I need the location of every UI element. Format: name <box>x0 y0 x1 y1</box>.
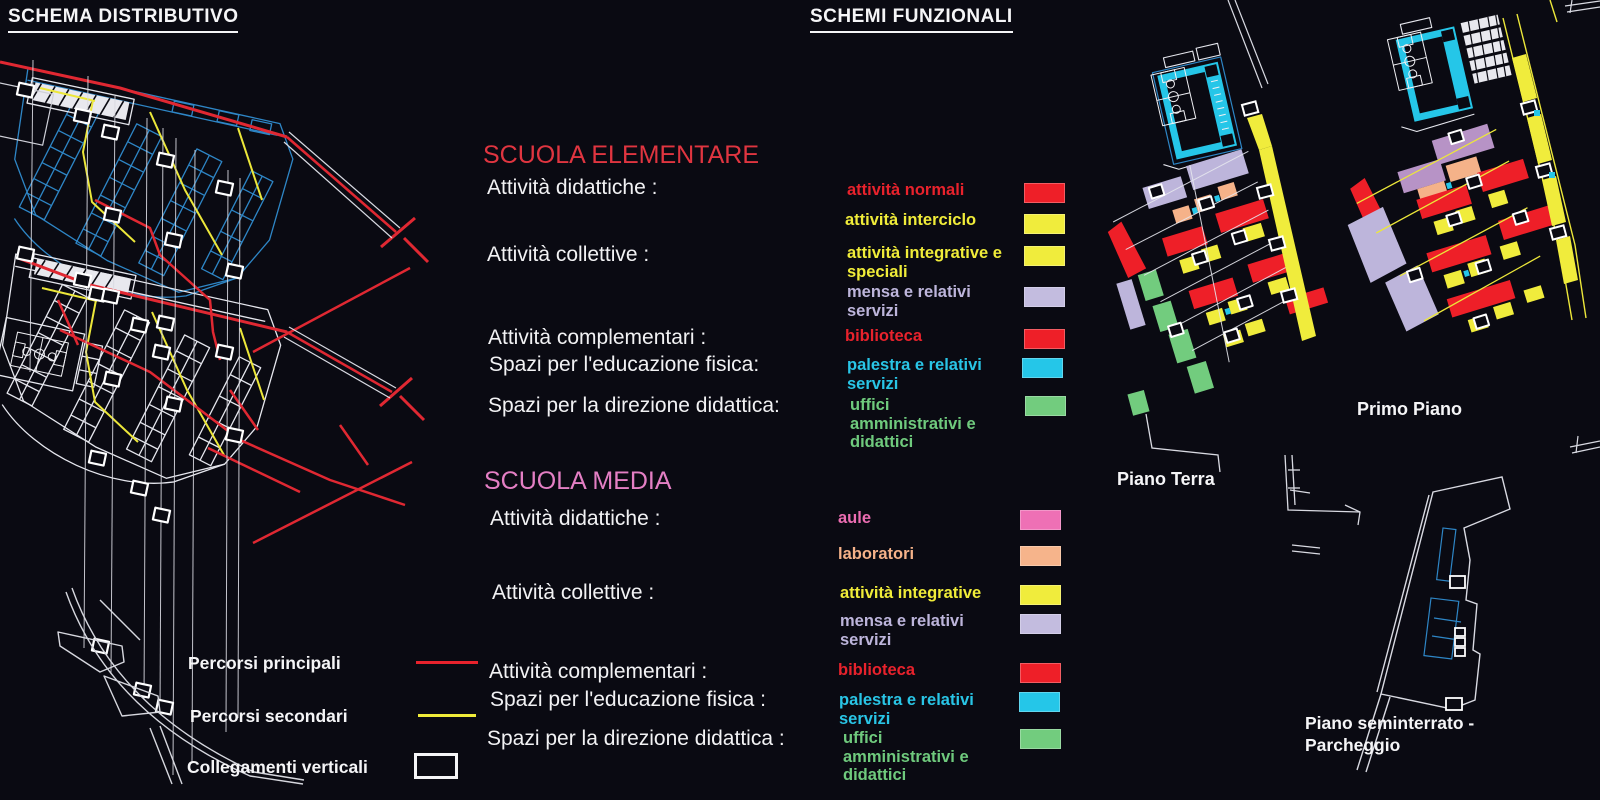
site-upper-floor <box>0 68 300 320</box>
legend-swatch <box>1020 729 1061 749</box>
category-elementare-direzione: Spazi per la direzione didattica: <box>488 394 780 418</box>
category-media-collettive: Attività collettive : <box>492 581 654 605</box>
legend-entry-label: attività integrative e speciali <box>847 244 1039 281</box>
category-media-complementari: Attività complementari : <box>489 660 707 684</box>
legend-percorsi-principali: Percorsi principali <box>188 653 341 674</box>
site-roads <box>284 132 400 398</box>
category-media-didattiche: Attività didattiche : <box>490 507 660 531</box>
legend-swatch <box>1020 585 1061 605</box>
legend-entry-label: mensa e relativi servizi <box>840 612 1000 649</box>
legend-entry-label: palestra e relativi servizi <box>847 356 1017 393</box>
title-schema-distributivo: SCHEMA DISTRIBUTIVO <box>8 6 238 33</box>
category-elementare-didattiche: Attività didattiche : <box>487 176 657 200</box>
primo-piano-tribunes <box>1461 15 1512 84</box>
category-media-educazione-fisica: Spazi per l'educazione fisica : <box>490 688 766 712</box>
legend-percorsi-secondari: Percorsi secondari <box>190 706 348 727</box>
section-title-media: SCUOLA MEDIA <box>484 467 672 496</box>
percorsi-secondari-sample-line <box>418 714 476 717</box>
category-media-direzione: Spazi per la direzione didattica : <box>487 727 785 751</box>
label-primo-piano: Primo Piano <box>1357 398 1462 420</box>
schemi-scuola-canvas: SCHEMA DISTRIBUTIVO SCHEMI FUNZIONALI SC… <box>0 0 1600 800</box>
piano-terra-gym <box>1140 43 1244 172</box>
legend-swatch <box>1020 510 1061 530</box>
site-lower-left-buildings <box>58 588 304 784</box>
site-gym <box>0 318 104 396</box>
category-elementare-collettive: Attività collettive : <box>487 243 649 267</box>
section-title-elementare: SCUOLA ELEMENTARE <box>483 141 759 170</box>
legend-swatch <box>1024 287 1065 307</box>
label-seminterrato: Piano seminterrato - Parcheggio <box>1305 712 1555 756</box>
legend-entry-label: uffici amministrativi e didattici <box>850 396 1000 452</box>
legend-collegamenti-verticali: Collegamenti verticali <box>187 757 368 778</box>
category-elementare-educazione-fisica: Spazi per l'educazione fisica: <box>489 353 759 377</box>
collegamenti-verticali-sample-box <box>414 753 458 779</box>
title-schemi-funzionali: SCHEMI FUNZIONALI <box>810 6 1013 33</box>
legend-entry-label: palestra e relativi servizi <box>839 691 1009 728</box>
legend-swatch <box>1020 614 1061 634</box>
legend-entry-label: biblioteca <box>838 661 1038 680</box>
percorsi-principali-sample-line <box>416 661 478 664</box>
site-plan <box>0 60 428 784</box>
primo-piano-plan <box>1296 0 1586 358</box>
legend-swatch <box>1020 546 1061 566</box>
primo-piano-gym <box>1379 13 1475 135</box>
legend-entry-label: aule <box>838 509 1038 528</box>
legend-entry-label: uffici amministrativi e didattici <box>843 729 993 785</box>
primo-piano-spine <box>1503 0 1586 320</box>
legend-entry-label: attività integrative <box>840 584 1040 603</box>
legend-swatch <box>1024 329 1065 349</box>
legend-swatch <box>1019 692 1060 712</box>
category-elementare-complementari: Attività complementari : <box>488 326 706 350</box>
legend-entry-label: laboratori <box>838 545 1038 564</box>
legend-entry-label: attività interciclo <box>845 211 1045 230</box>
legend-entry-label: attività normali <box>847 181 1047 200</box>
legend-swatch <box>1024 183 1065 203</box>
legend-entry-label: biblioteca <box>845 327 1045 346</box>
label-piano-terra: Piano Terra <box>1117 468 1215 490</box>
legend-swatch <box>1025 396 1066 416</box>
legend-entry-label: mensa e relativi servizi <box>847 283 1007 320</box>
legend-swatch <box>1024 214 1065 234</box>
legend-swatch <box>1024 246 1065 266</box>
legend-swatch <box>1020 663 1061 683</box>
legend-swatch <box>1022 358 1063 378</box>
